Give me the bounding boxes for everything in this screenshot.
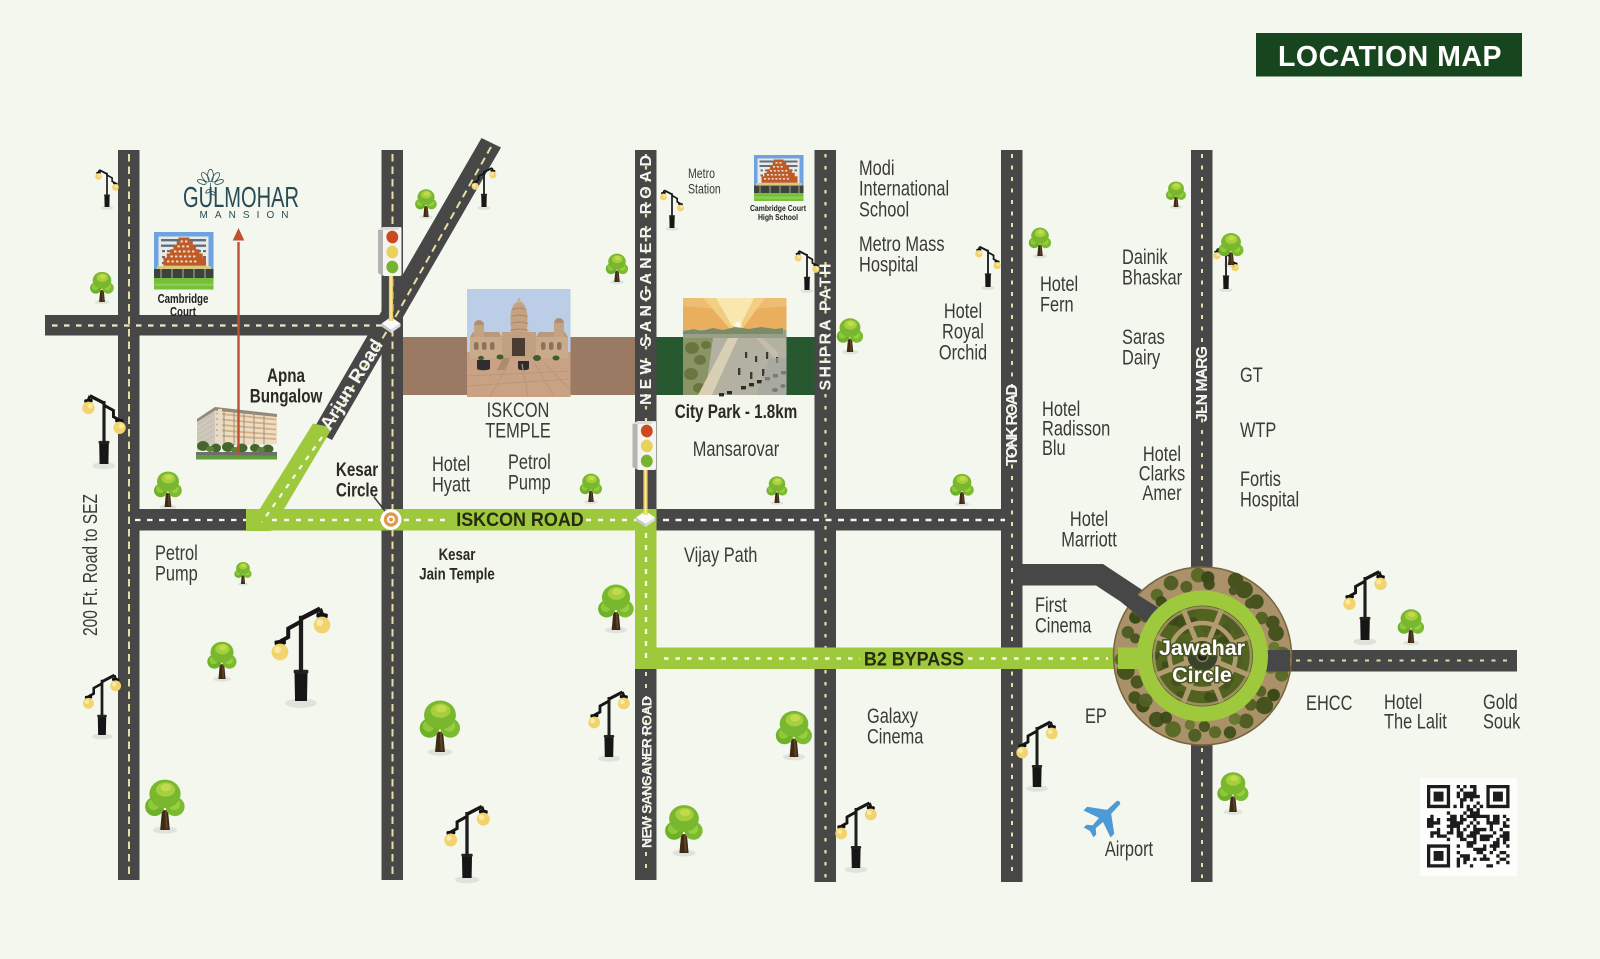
svg-text:EP: EP	[1085, 704, 1107, 727]
svg-text:ISKCON ROAD: ISKCON ROAD	[456, 508, 583, 530]
svg-text:Bungalow: Bungalow	[250, 385, 323, 407]
svg-text:Amer: Amer	[1142, 481, 1181, 504]
svg-text:Hospital: Hospital	[859, 253, 918, 276]
svg-text:Mansarovar: Mansarovar	[693, 437, 779, 460]
svg-text:Pump: Pump	[508, 471, 551, 494]
svg-text:Jawahar: Jawahar	[1159, 636, 1246, 660]
svg-text:Station: Station	[688, 181, 721, 197]
svg-text:Apna: Apna	[267, 364, 305, 386]
svg-text:Dairy: Dairy	[1122, 346, 1161, 369]
svg-text:Jain Temple: Jain Temple	[419, 565, 495, 584]
svg-text:Circle: Circle	[336, 479, 378, 501]
svg-text:School: School	[859, 197, 909, 220]
svg-text:TONK ROAD: TONK ROAD	[1004, 384, 1021, 466]
svg-text:Blu: Blu	[1042, 436, 1066, 459]
svg-text:Fern: Fern	[1040, 293, 1074, 316]
svg-text:Vijay Path: Vijay Path	[684, 543, 757, 566]
svg-text:Kesar: Kesar	[439, 546, 476, 565]
svg-text:Hyatt: Hyatt	[432, 473, 471, 496]
svg-text:200 Ft. Road to SEZ: 200 Ft. Road to SEZ	[79, 494, 101, 636]
svg-text:Bhaskar: Bhaskar	[1122, 266, 1182, 289]
svg-text:The Lalit: The Lalit	[1384, 710, 1447, 733]
svg-text:Court: Court	[170, 306, 196, 319]
svg-text:Souk: Souk	[1483, 710, 1521, 733]
svg-text:Cambridge: Cambridge	[158, 293, 209, 306]
svg-text:GT: GT	[1240, 363, 1263, 386]
svg-text:Pump: Pump	[155, 562, 198, 585]
svg-text:Airport: Airport	[1105, 837, 1154, 860]
svg-text:High School: High School	[758, 212, 798, 222]
svg-text:NEW SANGANER ROAD: NEW SANGANER ROAD	[638, 155, 655, 405]
svg-text:EHCC: EHCC	[1306, 691, 1352, 714]
svg-text:Marriott: Marriott	[1061, 528, 1117, 551]
svg-text:Circle: Circle	[1172, 663, 1232, 687]
svg-text:NEW SANGANER ROAD: NEW SANGANER ROAD	[639, 696, 655, 848]
svg-text:SHIPRA PATH: SHIPRA PATH	[817, 264, 834, 391]
svg-text:WTP: WTP	[1240, 418, 1276, 441]
svg-text:Metro: Metro	[688, 166, 715, 182]
svg-text:LOCATION MAP: LOCATION MAP	[1278, 41, 1502, 73]
svg-text:TEMPLE: TEMPLE	[485, 419, 551, 442]
svg-text:City Park - 1.8km: City Park - 1.8km	[675, 400, 797, 422]
svg-text:JLN MARG: JLN MARG	[1194, 346, 1211, 422]
svg-text:Cinema: Cinema	[1035, 614, 1092, 637]
svg-text:Kesar: Kesar	[336, 458, 378, 480]
svg-text:Hospital: Hospital	[1240, 488, 1299, 511]
svg-text:Orchid: Orchid	[939, 340, 987, 363]
svg-text:B2 BYPASS: B2 BYPASS	[864, 648, 964, 670]
svg-text:Cinema: Cinema	[867, 725, 924, 748]
